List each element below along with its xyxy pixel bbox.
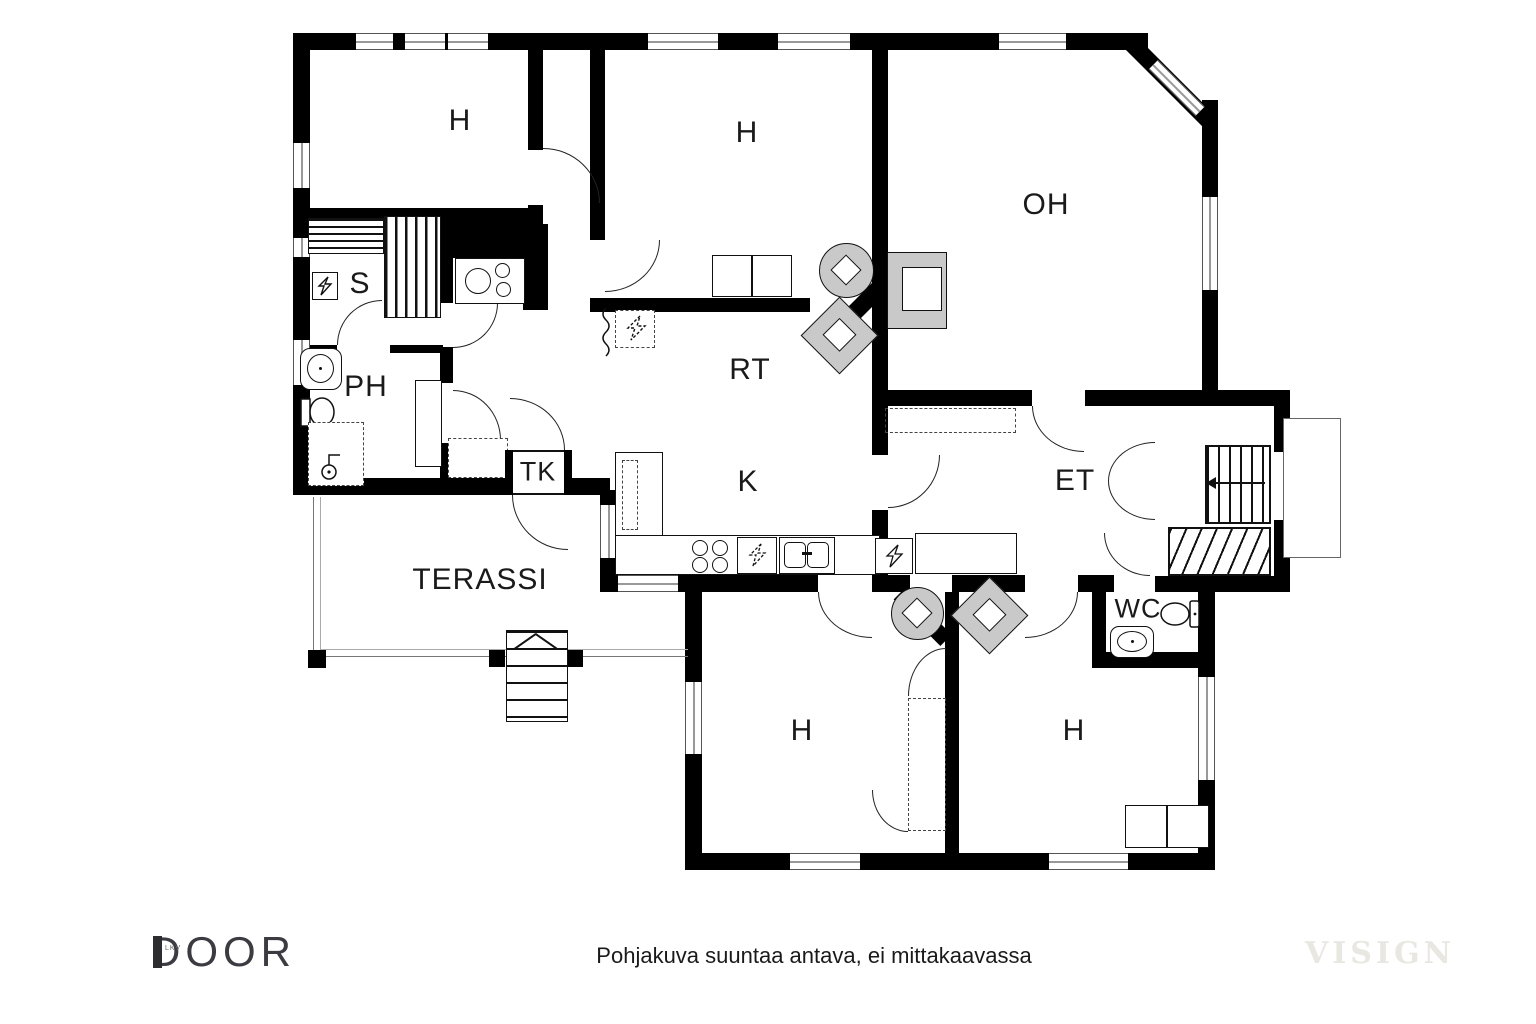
door-arc (337, 300, 382, 345)
window (999, 33, 1066, 50)
flue-wavy-icon (600, 308, 612, 360)
chair-seat (973, 598, 1007, 632)
door-arc (1025, 592, 1078, 638)
room-label-s: S (349, 267, 370, 301)
room-label-ph: PH (344, 370, 388, 404)
stairs-arrow-icon (1206, 477, 1216, 489)
floor-plan: H H OH S PH RT TK K ET WC H H TERASSI DO… (0, 0, 1536, 1024)
sink-basin (784, 542, 806, 568)
stairs-direction-line (1213, 482, 1265, 484)
door-arc (453, 303, 498, 348)
armchair-icon (819, 243, 874, 298)
window (790, 853, 860, 870)
sauna-stove-icon (312, 272, 338, 300)
wall (1085, 390, 1170, 406)
room-label-k: K (737, 465, 758, 499)
room-label-et: ET (1055, 464, 1095, 498)
brand-logo-bar (153, 936, 162, 968)
furniture-box (752, 255, 792, 297)
armchair-icon (891, 587, 944, 640)
chair-seat (830, 254, 861, 285)
entrance-landing (1283, 418, 1341, 558)
room-label-wc: WC (1115, 594, 1162, 625)
wall (880, 390, 1032, 406)
burner-icon (496, 282, 511, 297)
window (1049, 853, 1128, 870)
room-label-terassi: TERASSI (412, 563, 547, 597)
wall (872, 50, 888, 255)
window (685, 682, 702, 754)
door-arc (453, 390, 501, 440)
shower-icon (318, 448, 346, 482)
sink-tap (802, 552, 812, 555)
room-label-oh: OH (1023, 188, 1070, 222)
wall (590, 50, 605, 240)
window (293, 143, 310, 188)
door-arc-double (1108, 442, 1155, 481)
fireplace-insert (902, 267, 942, 311)
room-label-h4: H (1063, 714, 1086, 748)
door-arc (1104, 533, 1150, 576)
fireplace-icon (887, 252, 947, 329)
sink-icon (1110, 626, 1154, 658)
electrical-panel (875, 538, 913, 574)
furniture-box (712, 255, 752, 297)
window (356, 33, 393, 50)
sink-basin (807, 542, 829, 568)
furniture-box (1125, 805, 1167, 848)
door-arc (510, 398, 565, 450)
window (1202, 197, 1218, 290)
window (1198, 677, 1215, 780)
wall (505, 450, 513, 495)
door-arc (888, 455, 940, 508)
bench (915, 533, 1017, 574)
window (648, 33, 718, 50)
window (778, 33, 850, 50)
wall (440, 217, 453, 303)
room-label-h1: H (449, 104, 472, 138)
door-arc (818, 592, 872, 638)
window (448, 33, 488, 50)
room-label-h3: H (791, 714, 814, 748)
wall (443, 224, 548, 258)
duct-cabinet (415, 380, 442, 467)
sink-drain (1131, 640, 1134, 643)
brand-logo: DOOR (150, 928, 296, 976)
window-chamfer (1149, 60, 1205, 116)
door-arc (908, 648, 946, 696)
toilet-icon (1158, 598, 1202, 632)
lightning-icon (880, 542, 908, 570)
sink-icon (300, 348, 342, 390)
wall (1160, 390, 1290, 406)
terrace-post (567, 650, 583, 667)
wardrobe-dashed (885, 408, 1016, 433)
door-arc (1032, 406, 1084, 452)
wall (564, 450, 572, 495)
terrace-post (308, 650, 326, 668)
door-arc (605, 240, 660, 292)
room-label-h2: H (736, 116, 759, 150)
burner-icon (692, 540, 708, 556)
terrace-post (489, 650, 505, 667)
burner-icon (692, 557, 708, 573)
wall (685, 853, 1215, 870)
wall (1155, 576, 1290, 592)
sink-drain (319, 367, 322, 370)
terrace-steps (506, 630, 568, 722)
wall (390, 345, 443, 353)
brand-logo-sub: LKV (165, 945, 181, 952)
burner-icon (712, 540, 728, 556)
burner-icon (495, 263, 510, 278)
door-arc-double (1108, 481, 1155, 520)
stairs-winder (1168, 527, 1271, 576)
lightning-icon (315, 275, 335, 297)
kitchen-sink (779, 537, 835, 574)
lightning-icon (743, 541, 771, 569)
burner-icon (712, 557, 728, 573)
dishwasher (737, 537, 777, 574)
window (405, 33, 445, 50)
sauna-bench-icon (308, 218, 384, 254)
door-arc (872, 790, 908, 832)
chair-seat (823, 318, 857, 352)
wardrobe-dashed (908, 698, 946, 831)
wall (523, 256, 548, 310)
watermark-text: VISIGN (1305, 936, 1455, 971)
room-label-tk: TK (520, 457, 557, 488)
lightning-icon (622, 313, 650, 343)
cabinet-dashed (448, 438, 508, 478)
chair-seat (901, 597, 932, 628)
burner-icon (465, 268, 491, 294)
disclaimer-text: Pohjakuva suuntaa antava, ei mittakaavas… (596, 943, 1031, 969)
room-label-rt: RT (729, 353, 770, 387)
wall (1092, 652, 1215, 668)
sauna-bench-icon (384, 216, 441, 318)
wall (528, 50, 543, 150)
furniture-box (1167, 805, 1209, 848)
